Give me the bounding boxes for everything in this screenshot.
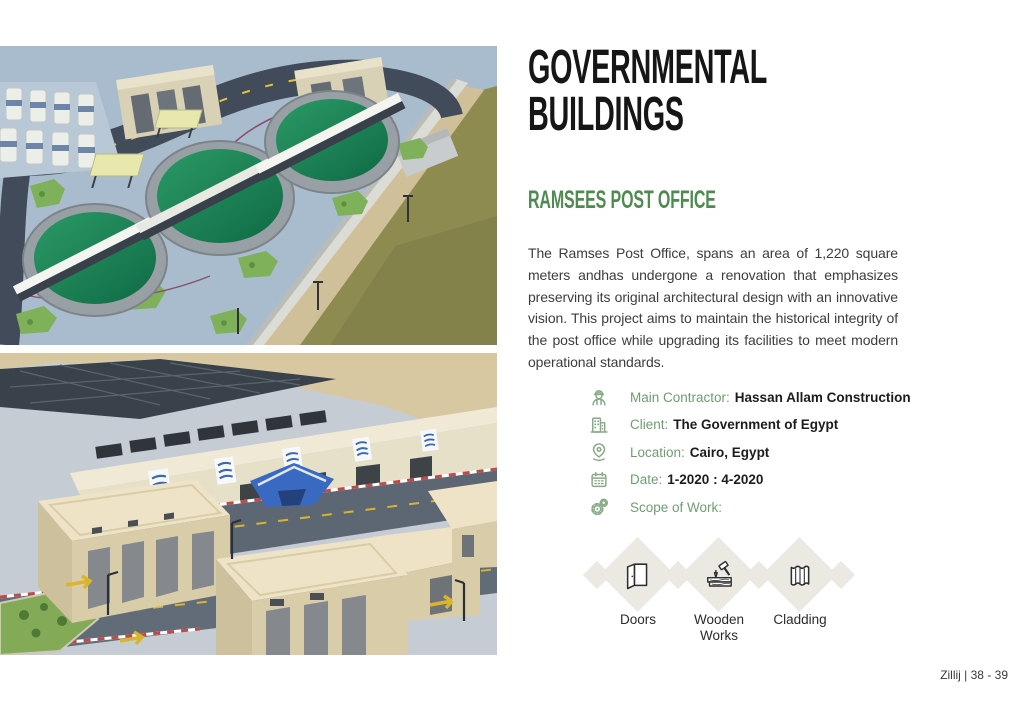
detail-label: Location: bbox=[630, 445, 685, 460]
water-treatment-scene bbox=[0, 46, 497, 345]
detail-value: 1-2020 : 4-2020 bbox=[667, 472, 763, 487]
brochure-page: GOVERNMENTAL BUILDINGS RAMSEES POST OFFI… bbox=[0, 0, 1024, 724]
location-pin-icon bbox=[588, 441, 610, 463]
page-title-line-2: BUILDINGS bbox=[528, 91, 767, 138]
scope-item-label: Doors bbox=[596, 612, 680, 628]
detail-label: Main Contractor: bbox=[630, 390, 730, 405]
detail-row-main-contractor: Main Contractor: Hassan Allam Constructi… bbox=[588, 386, 911, 408]
detail-value: Cairo, Egypt bbox=[690, 445, 770, 460]
detail-row-scope-of-work: Scope of Work: bbox=[588, 496, 911, 518]
project-description: The Ramses Post Office, spans an area of… bbox=[528, 243, 898, 374]
door-icon bbox=[620, 557, 656, 593]
page-footer: Zillij | 38 - 39 bbox=[940, 668, 1008, 682]
page-title-line-1: GOVERNMENTAL bbox=[528, 44, 767, 91]
project-details-list: Main Contractor: Hassan Allam Constructi… bbox=[588, 386, 911, 524]
photo-water-treatment-plant bbox=[0, 46, 497, 345]
photo-governmental-buildings-site bbox=[0, 353, 497, 655]
page-title: GOVERNMENTAL BUILDINGS bbox=[528, 44, 926, 138]
detail-row-date: Date: 1-2020 : 4-2020 bbox=[588, 469, 911, 491]
detail-label: Client: bbox=[630, 417, 668, 432]
detail-value: The Government of Egypt bbox=[673, 417, 838, 432]
detail-row-location: Location: Cairo, Egypt bbox=[588, 441, 911, 463]
calendar-icon bbox=[588, 469, 610, 491]
scope-of-work-strip: Doors Wooden Works Cladding bbox=[528, 536, 908, 656]
project-heading: RAMSEES POST OFFICE bbox=[528, 188, 716, 213]
detail-label: Scope of Work: bbox=[630, 500, 722, 515]
gears-icon bbox=[588, 496, 610, 518]
worker-helmet-icon bbox=[588, 386, 610, 408]
scope-item-label: Cladding bbox=[758, 612, 842, 628]
detail-label: Date: bbox=[630, 472, 662, 487]
hammer-wood-icon bbox=[701, 557, 737, 593]
cladding-panel-icon bbox=[782, 557, 818, 593]
scope-item-label: Wooden Works bbox=[677, 612, 761, 644]
detail-value: Hassan Allam Construction bbox=[735, 390, 911, 405]
building-icon bbox=[588, 414, 610, 436]
buildings-site-scene bbox=[0, 353, 497, 655]
detail-row-client: Client: The Government of Egypt bbox=[588, 414, 911, 436]
